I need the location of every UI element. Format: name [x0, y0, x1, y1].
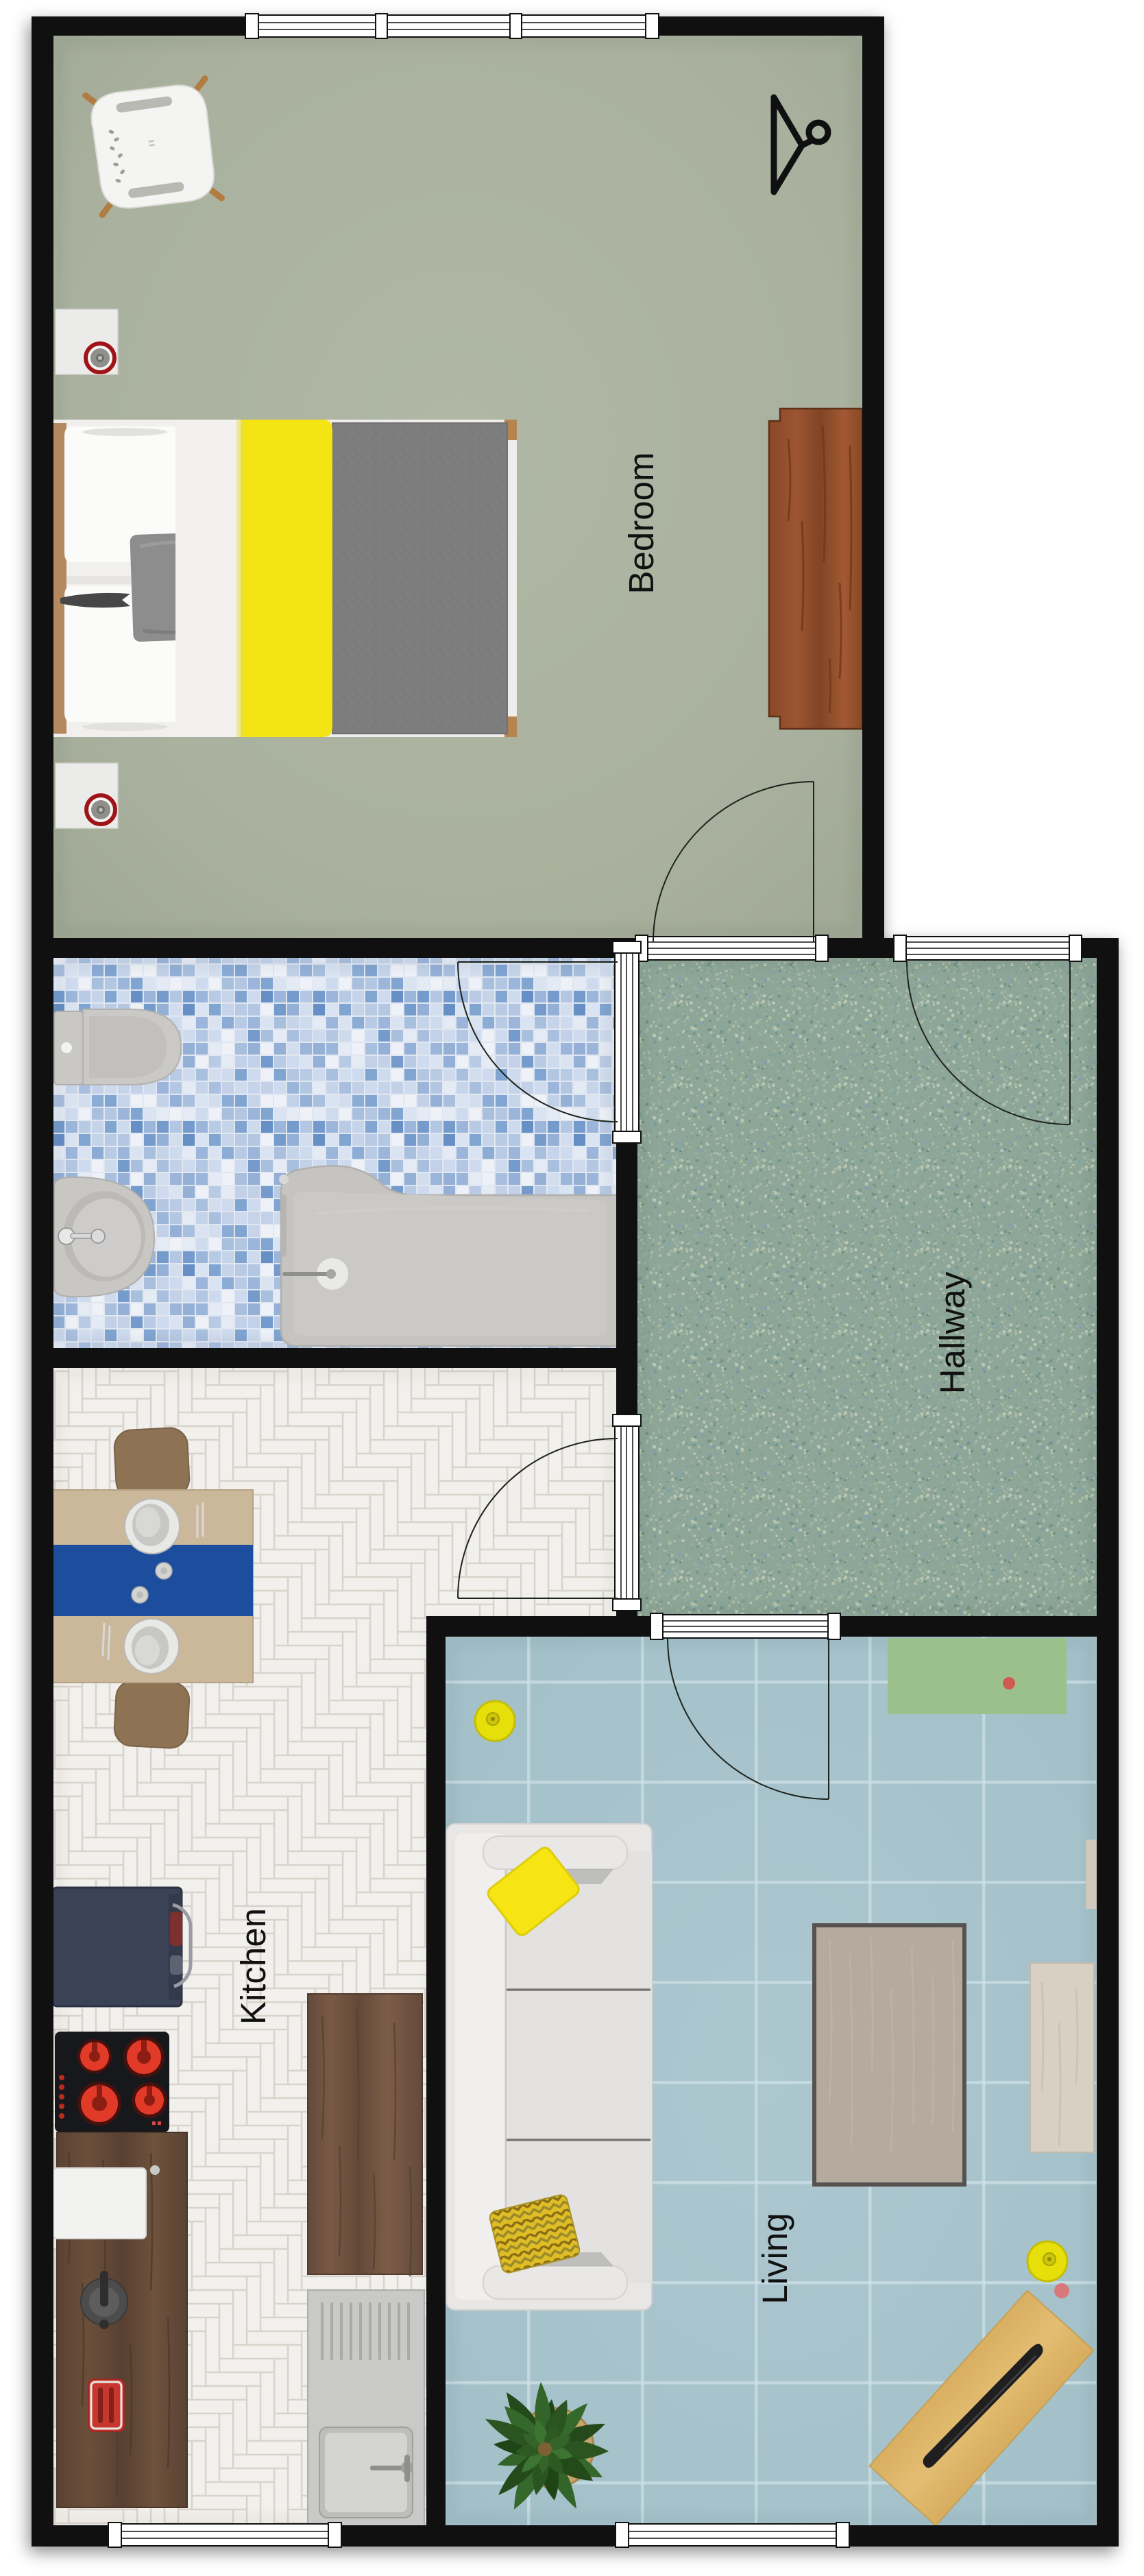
- svg-text:Living: Living: [755, 2213, 794, 2304]
- svg-text:Hallway: Hallway: [933, 1271, 972, 1394]
- svg-text:Bedroom: Bedroom: [622, 453, 661, 594]
- svg-text:Kitchen: Kitchen: [234, 1908, 273, 2025]
